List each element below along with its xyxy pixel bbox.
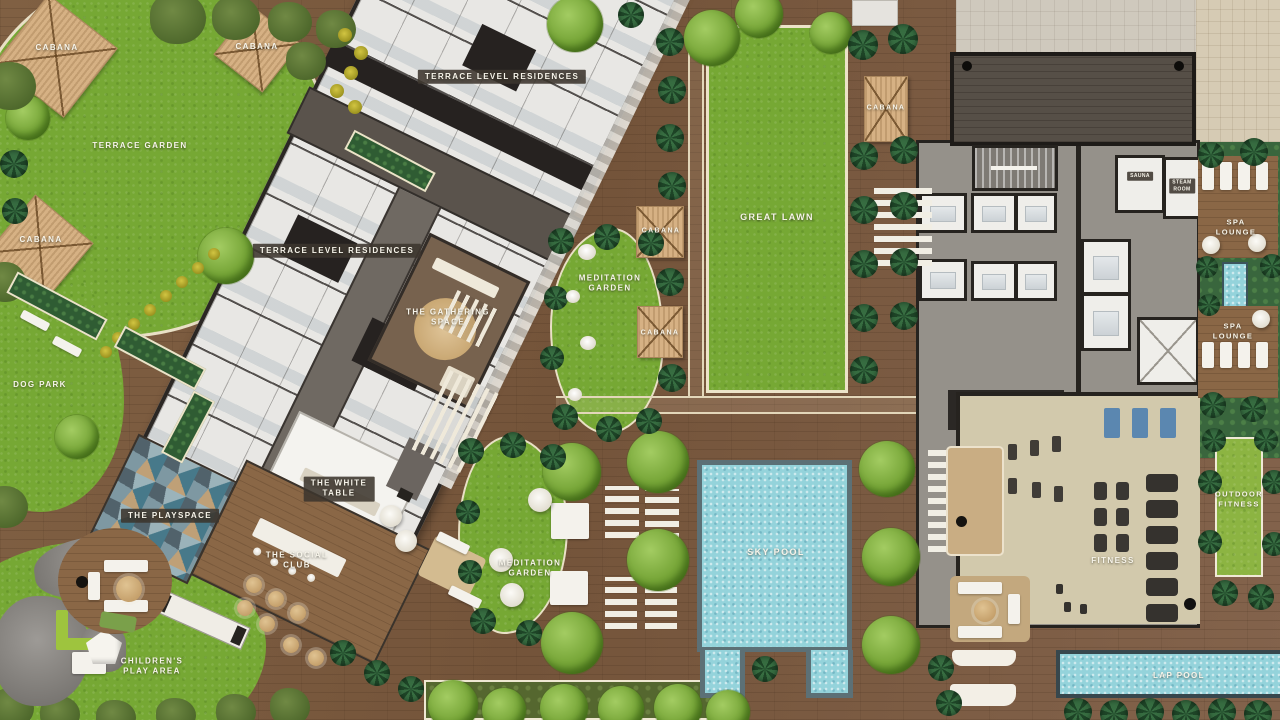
treatment-bed: [1093, 311, 1119, 336]
wall-segment: [1076, 146, 1081, 392]
spa-lounger: [1256, 342, 1268, 368]
terrace-garden-label: TERRACE GARDEN: [92, 141, 187, 151]
table: [974, 600, 996, 622]
sky-pool-label: SKY POOL: [747, 547, 805, 559]
palm-plant: [848, 30, 878, 60]
cabana-label: CABANA: [235, 42, 278, 52]
spa-lounger: [1202, 342, 1214, 368]
spa-lounger: [1238, 342, 1250, 368]
sauna-room: [1118, 158, 1162, 210]
palm-plant: [1248, 584, 1274, 610]
terrace-level-residences-label: TERRACE LEVEL RESIDENCES: [253, 244, 421, 258]
palm-plant: [928, 655, 954, 681]
palm-plant: [456, 500, 480, 524]
firepit: [76, 576, 88, 588]
palm-plant: [1202, 428, 1226, 452]
palm-plant: [548, 228, 574, 254]
palm-plant: [500, 432, 526, 458]
treatment-room: [1084, 296, 1128, 348]
spa-lounge-label: SPA LOUNGE: [1210, 321, 1257, 341]
treatment-room: [1084, 242, 1128, 292]
boulder: [580, 336, 596, 350]
palm-plant: [1208, 698, 1236, 720]
stair-room: [975, 148, 1055, 188]
childrens-play-area-label: CHILDREN'S PLAY AREA: [121, 657, 184, 678]
umbrella: [395, 530, 417, 552]
palm-plant: [1198, 142, 1224, 168]
weight-station: [1030, 440, 1039, 456]
palm-plant: [552, 404, 578, 430]
boulder: [568, 388, 582, 401]
massage-bed: [930, 206, 955, 222]
seating-rug: [950, 576, 1030, 642]
yellow-shrub: [344, 66, 358, 80]
terrace-level-residences-label: TERRACE LEVEL RESIDENCES: [418, 70, 586, 84]
tree: [810, 12, 852, 54]
palm-plant: [936, 690, 962, 716]
walkway-horizontal: [556, 396, 962, 414]
spa-lounger: [1256, 162, 1268, 190]
column-dot: [1174, 61, 1184, 71]
tree: [684, 10, 740, 66]
dog-park-label: DOG PARK: [13, 380, 67, 390]
plunge-pool: [1222, 262, 1248, 308]
weight-station: [1008, 444, 1017, 460]
meditation-garden-label: MEDITATION GARDEN: [499, 559, 562, 580]
palm-plant: [752, 656, 778, 682]
meditation-garden-label: MEDITATION GARDEN: [579, 274, 642, 295]
cabana-label: CABANA: [19, 235, 62, 245]
lap-pool-label: LAP POOL: [1153, 671, 1205, 681]
palm-plant: [1212, 580, 1238, 606]
yellow-shrub: [338, 28, 352, 42]
palm-plant: [658, 76, 686, 104]
spa-lounge-label: SPA LOUNGE: [1214, 217, 1258, 237]
sauna-label: SAUNA: [1127, 172, 1153, 181]
spa-lounger: [1220, 162, 1232, 190]
palm-plant: [890, 302, 918, 330]
massage-bed: [982, 206, 1006, 222]
palm-plant: [658, 364, 686, 392]
spa-lounger: [1238, 162, 1250, 190]
cafe-table: [237, 600, 253, 616]
massage-room: [974, 264, 1014, 298]
yellow-shrub: [208, 248, 220, 260]
palm-plant: [1198, 530, 1222, 554]
treadmill: [1146, 578, 1178, 596]
massage-bed: [982, 274, 1006, 290]
bike: [1094, 482, 1107, 500]
cabana-label: CABANA: [642, 226, 681, 235]
palm-plant: [850, 196, 878, 224]
palm-plant: [1262, 532, 1280, 556]
palm-plant: [850, 142, 878, 170]
palm-plant: [1196, 256, 1218, 278]
palm-plant: [1240, 396, 1266, 422]
walkway-vertical: [688, 24, 704, 396]
massage-bed: [930, 272, 955, 289]
massage-room: [1018, 264, 1054, 298]
palm-plant: [618, 2, 644, 28]
outdoor-fitness-label: OUTDOOR FITNESS: [1215, 489, 1263, 509]
kettlebell: [1064, 602, 1071, 612]
lounger-row: [605, 486, 639, 538]
tree: [859, 441, 915, 497]
treadmill: [1146, 604, 1178, 622]
weight-station: [1052, 436, 1061, 452]
cabana-label: CABANA: [641, 328, 680, 337]
kettlebell: [1080, 604, 1087, 614]
yoga-mat: [1160, 408, 1176, 438]
scallop-planter: [952, 650, 1016, 666]
palm-plant: [890, 136, 918, 164]
cafe-table: [268, 591, 284, 607]
round-chair: [1202, 236, 1220, 254]
palm-plant: [1244, 700, 1272, 720]
palm-plant: [458, 438, 484, 464]
palm-plant: [658, 172, 686, 200]
steam-room-label: STEAM ROOM: [1169, 179, 1195, 194]
shrub: [286, 42, 326, 80]
palm-plant: [1260, 254, 1280, 278]
treadmill: [1146, 500, 1178, 518]
cafe-table: [246, 577, 262, 593]
tree: [862, 616, 920, 674]
palm-plant: [0, 150, 28, 178]
tree: [862, 528, 920, 586]
yellow-shrub: [348, 100, 362, 114]
cafe-table: [308, 650, 324, 666]
cabana-label: CABANA: [867, 103, 906, 112]
sofa: [958, 582, 1002, 594]
umbrella: [500, 583, 524, 607]
yellow-shrub: [192, 262, 204, 274]
cafe-table: [283, 637, 299, 653]
playspace-label: THE PLAYSPACE: [121, 509, 219, 523]
yellow-shrub: [176, 276, 188, 288]
palm-plant: [850, 304, 878, 332]
shrub: [216, 694, 256, 720]
tree: [55, 415, 99, 459]
play-bench-lime: [56, 610, 68, 644]
yellow-shrub: [160, 290, 172, 302]
palm-plant: [540, 346, 564, 370]
yellow-shrub: [144, 304, 156, 316]
amenity-site-plan: TERRACE GARDEN CABANA CABANA CABANA CABA…: [0, 0, 1280, 720]
massage-bed: [1025, 206, 1047, 222]
pavilion: [946, 446, 1004, 556]
yoga-mat: [1104, 408, 1120, 438]
boulder: [578, 244, 596, 260]
palm-plant: [850, 356, 878, 384]
palm-plant: [890, 248, 918, 276]
bike: [1094, 534, 1107, 552]
column-dot: [956, 516, 967, 527]
palm-plant: [1100, 700, 1128, 720]
tree: [627, 431, 689, 493]
palm-plant: [1198, 294, 1220, 316]
massage-room: [922, 262, 964, 298]
sofa: [958, 626, 1002, 638]
palm-plant: [458, 560, 482, 584]
column-dot: [1184, 598, 1196, 610]
palm-plant: [2, 198, 28, 224]
umbrella: [380, 505, 402, 527]
cafe-table: [290, 605, 306, 621]
daybed: [551, 503, 589, 539]
palm-plant: [656, 124, 684, 152]
weight-station: [1008, 478, 1017, 494]
palm-plant: [1200, 392, 1226, 418]
palm-plant: [888, 24, 918, 54]
bike: [1116, 482, 1129, 500]
lower-sauna-room: [1140, 320, 1196, 382]
palm-plant: [636, 408, 662, 434]
palm-plant: [1262, 470, 1280, 494]
shrub: [268, 2, 312, 42]
sky-pool-wing: [806, 650, 853, 698]
great-lawn-area: [706, 25, 848, 393]
sofa: [104, 560, 148, 572]
cafe-table: [259, 616, 275, 632]
palm-plant: [890, 192, 918, 220]
palm-plant: [470, 608, 496, 634]
stool: [306, 573, 317, 584]
palm-plant: [1136, 698, 1164, 720]
white-table-label: THE WHITE TABLE: [304, 477, 375, 502]
massage-bed: [1025, 274, 1047, 290]
spa-roof: [950, 52, 1196, 146]
massage-room: [974, 196, 1014, 230]
bike: [1116, 508, 1129, 526]
treadmill: [1146, 526, 1178, 544]
handrail: [991, 166, 1037, 170]
palm-plant: [656, 28, 684, 56]
palm-plant: [850, 250, 878, 278]
palm-plant: [1254, 428, 1278, 452]
bike: [1116, 534, 1129, 552]
palm-plant: [330, 640, 356, 666]
gathering-space-label: THE GATHERING SPACE: [406, 308, 490, 329]
great-lawn-label: GREAT LAWN: [740, 212, 814, 224]
fitness-label: FITNESS: [1091, 556, 1135, 566]
roof-terrace-paving-right: [1196, 0, 1280, 154]
palm-plant: [398, 676, 424, 702]
sofa: [431, 257, 499, 298]
social-club-label: THE SOCIAL CLUB: [266, 551, 328, 572]
firepit-table: [116, 576, 142, 602]
treatment-bed: [1093, 256, 1119, 280]
palm-plant: [544, 286, 568, 310]
palm-plant: [516, 620, 542, 646]
bike: [1094, 508, 1107, 526]
weight-station: [1032, 482, 1041, 498]
umbrella: [528, 488, 552, 512]
shrub: [270, 688, 310, 720]
stool: [252, 546, 263, 557]
massage-room: [1018, 196, 1054, 230]
palm-plant: [656, 268, 684, 296]
palm-plant: [1064, 698, 1092, 720]
tree: [627, 529, 689, 591]
spa-lounger: [1220, 342, 1232, 368]
palm-plant: [540, 444, 566, 470]
column-dot: [962, 61, 972, 71]
tree: [541, 612, 603, 674]
yoga-mat: [1132, 408, 1148, 438]
yellow-shrub: [330, 84, 344, 98]
palm-plant: [364, 660, 390, 686]
sofa: [88, 572, 100, 600]
palm-plant: [1172, 700, 1200, 720]
lounger-row: [605, 577, 637, 629]
yellow-shrub: [100, 346, 112, 358]
palm-plant: [594, 224, 620, 250]
weight-station: [1054, 486, 1063, 502]
treadmill: [1146, 474, 1178, 492]
palm-plant: [1240, 138, 1268, 166]
yellow-shrub: [354, 46, 368, 60]
palm-plant: [596, 416, 622, 442]
kettlebell: [1056, 584, 1063, 594]
cabana-label: CABANA: [35, 43, 78, 53]
white-slab: [852, 0, 898, 26]
sofa: [1008, 594, 1020, 624]
shrub: [316, 10, 356, 48]
treadmill: [1146, 552, 1178, 570]
tree: [198, 228, 254, 284]
